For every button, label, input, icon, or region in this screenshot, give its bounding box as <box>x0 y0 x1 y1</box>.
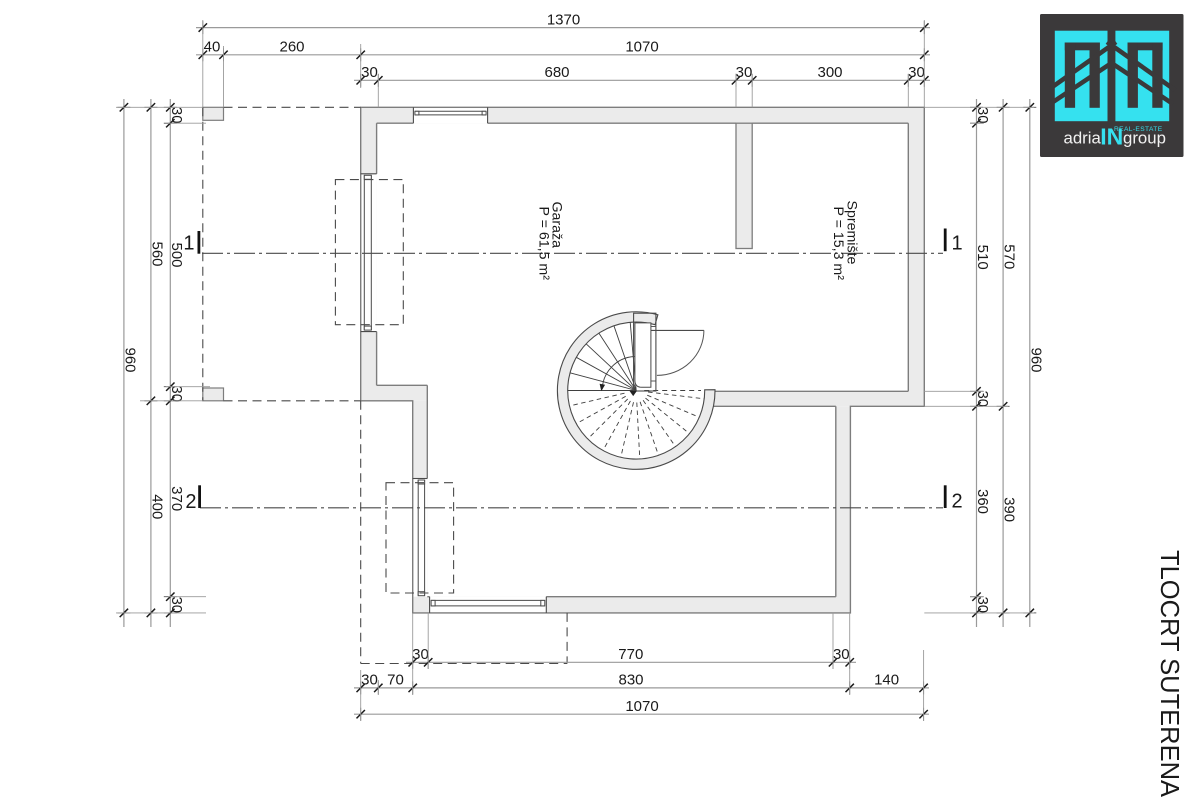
svg-text:P = 61,5 m²: P = 61,5 m² <box>536 207 552 281</box>
svg-text:390: 390 <box>1001 497 1018 522</box>
svg-text:40: 40 <box>204 39 221 56</box>
svg-text:REAL-ESTATE: REAL-ESTATE <box>1114 126 1163 133</box>
svg-text:30: 30 <box>168 385 185 402</box>
svg-text:2: 2 <box>952 491 963 513</box>
svg-text:P = 15,3 m²: P = 15,3 m² <box>830 207 846 281</box>
svg-text:400: 400 <box>148 494 165 519</box>
svg-text:1370: 1370 <box>547 11 580 28</box>
svg-text:30: 30 <box>736 64 753 81</box>
svg-text:680: 680 <box>544 64 569 81</box>
svg-text:500: 500 <box>168 242 185 267</box>
svg-text:30: 30 <box>361 672 378 689</box>
svg-text:30: 30 <box>168 596 185 613</box>
svg-text:30: 30 <box>974 107 991 124</box>
svg-text:30: 30 <box>908 64 925 81</box>
svg-text:2: 2 <box>185 491 196 513</box>
svg-text:30: 30 <box>168 107 185 124</box>
svg-text:260: 260 <box>279 39 304 56</box>
svg-text:30: 30 <box>412 646 429 663</box>
svg-text:570: 570 <box>1001 244 1018 269</box>
svg-text:1: 1 <box>952 232 963 254</box>
svg-text:960: 960 <box>121 347 138 372</box>
svg-text:adria: adria <box>1064 129 1102 148</box>
svg-text:1070: 1070 <box>625 698 658 715</box>
svg-text:TLOCRT SUTERENA: TLOCRT SUTERENA <box>1155 550 1183 797</box>
svg-text:830: 830 <box>618 672 643 689</box>
svg-text:30: 30 <box>974 596 991 613</box>
svg-text:30: 30 <box>361 64 378 81</box>
svg-text:360: 360 <box>974 489 991 514</box>
svg-text:140: 140 <box>874 672 899 689</box>
svg-text:70: 70 <box>387 672 404 689</box>
svg-text:300: 300 <box>817 64 842 81</box>
svg-text:1070: 1070 <box>625 39 658 56</box>
svg-text:30: 30 <box>833 646 850 663</box>
svg-text:510: 510 <box>974 245 991 270</box>
svg-text:370: 370 <box>168 486 185 511</box>
svg-text:30: 30 <box>974 390 991 407</box>
svg-text:770: 770 <box>618 646 643 663</box>
svg-text:560: 560 <box>148 241 165 266</box>
svg-text:960: 960 <box>1027 347 1044 372</box>
